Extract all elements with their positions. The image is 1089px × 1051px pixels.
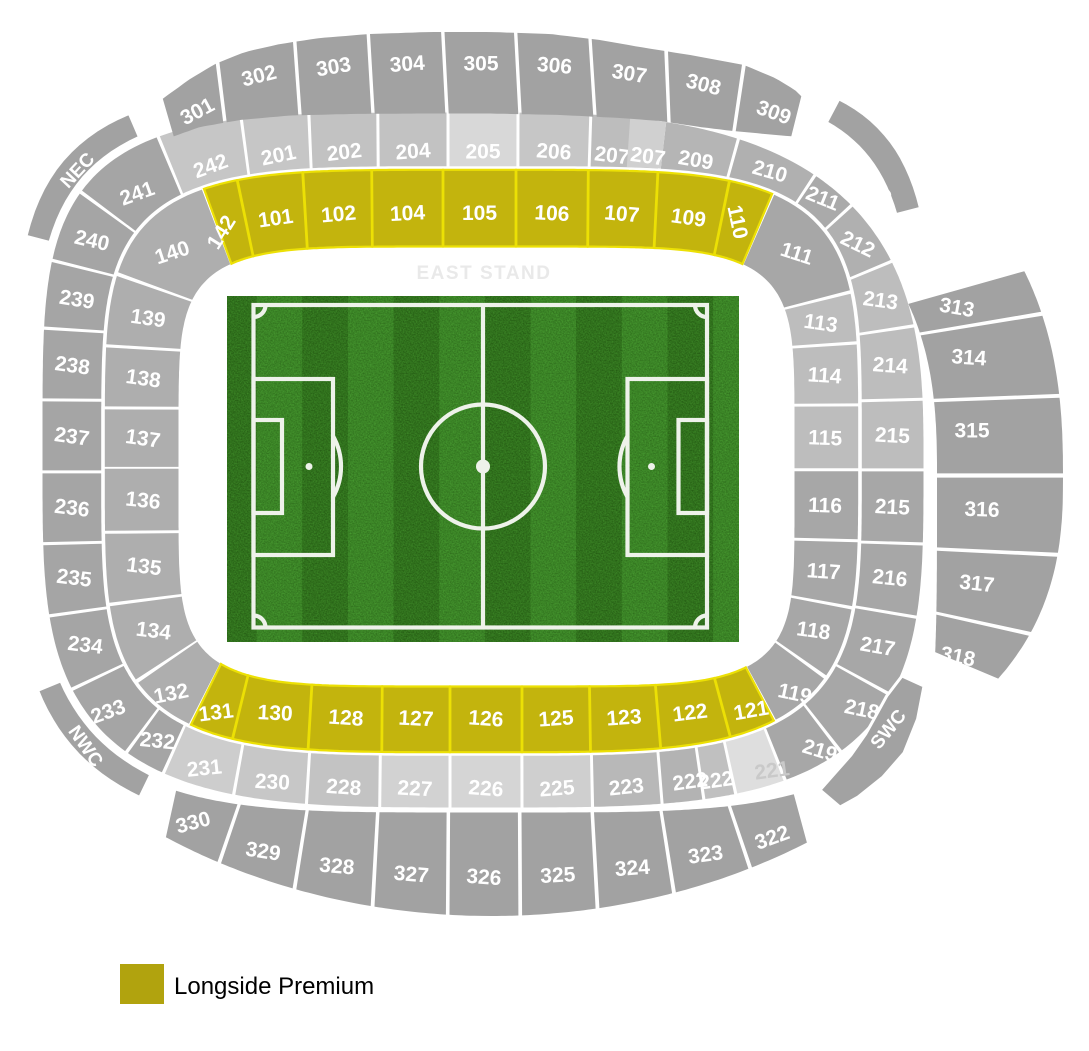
svg-text:228: 228 [325, 775, 362, 800]
svg-text:314: 314 [951, 345, 988, 370]
svg-text:213: 213 [862, 287, 900, 315]
svg-text:107: 107 [603, 201, 640, 227]
svg-text:323: 323 [687, 841, 725, 869]
svg-text:206: 206 [536, 139, 573, 164]
svg-text:306: 306 [536, 53, 573, 79]
svg-text:221: 221 [753, 757, 791, 785]
svg-text:214: 214 [872, 353, 909, 378]
svg-text:215: 215 [874, 423, 911, 448]
svg-text:114: 114 [807, 363, 843, 388]
svg-text:325: 325 [540, 863, 577, 888]
svg-text:106: 106 [534, 201, 570, 226]
svg-text:232: 232 [139, 728, 176, 755]
svg-text:316: 316 [964, 498, 1000, 522]
svg-text:109: 109 [669, 204, 707, 232]
svg-text:128: 128 [328, 706, 365, 731]
svg-text:123: 123 [606, 705, 643, 730]
svg-text:125: 125 [538, 706, 575, 731]
svg-text:139: 139 [129, 305, 167, 333]
svg-text:304: 304 [389, 52, 426, 77]
svg-text:113: 113 [802, 310, 839, 337]
svg-text:223: 223 [608, 774, 645, 801]
svg-text:324: 324 [614, 856, 651, 881]
svg-text:231: 231 [186, 755, 224, 782]
svg-text:328: 328 [318, 854, 355, 880]
svg-text:101: 101 [257, 205, 295, 233]
svg-text:230: 230 [254, 770, 290, 795]
svg-text:222: 222 [671, 768, 709, 796]
svg-text:131: 131 [197, 699, 235, 726]
svg-text:104: 104 [389, 201, 426, 226]
svg-text:102: 102 [320, 202, 357, 228]
svg-text:205: 205 [465, 140, 500, 163]
svg-text:237: 237 [53, 423, 91, 451]
svg-text:238: 238 [53, 352, 91, 380]
svg-text:135: 135 [125, 553, 163, 580]
svg-text:136: 136 [124, 488, 161, 515]
svg-text:236: 236 [53, 495, 91, 522]
svg-text:215: 215 [874, 495, 911, 520]
svg-text:105: 105 [462, 202, 497, 225]
svg-text:225: 225 [539, 776, 576, 801]
svg-text:226: 226 [468, 776, 505, 801]
svg-text:216: 216 [871, 565, 908, 592]
svg-text:115: 115 [808, 426, 843, 450]
svg-text:327: 327 [393, 862, 430, 888]
svg-text:227: 227 [397, 776, 433, 801]
svg-text:207: 207 [629, 143, 667, 171]
svg-text:234: 234 [66, 632, 104, 659]
svg-text:127: 127 [398, 706, 434, 731]
svg-text:130: 130 [257, 701, 293, 726]
svg-text:204: 204 [395, 139, 432, 164]
svg-text:138: 138 [124, 365, 162, 393]
svg-text:305: 305 [463, 52, 498, 75]
svg-text:122: 122 [671, 700, 709, 727]
svg-text:315: 315 [954, 419, 989, 442]
svg-text:118: 118 [795, 617, 832, 645]
svg-text:Longside Premium: Longside Premium [174, 973, 374, 1000]
svg-text:326: 326 [466, 865, 503, 890]
svg-text:235: 235 [55, 565, 93, 592]
svg-text:EAST STAND: EAST STAND [417, 263, 552, 284]
svg-text:117: 117 [806, 559, 841, 584]
svg-text:116: 116 [808, 494, 843, 518]
svg-text:202: 202 [326, 139, 364, 166]
svg-text:317: 317 [958, 571, 995, 598]
svg-text:207: 207 [593, 142, 631, 169]
svg-text:126: 126 [468, 706, 505, 731]
svg-text:137: 137 [124, 425, 162, 453]
svg-text:134: 134 [135, 618, 173, 645]
